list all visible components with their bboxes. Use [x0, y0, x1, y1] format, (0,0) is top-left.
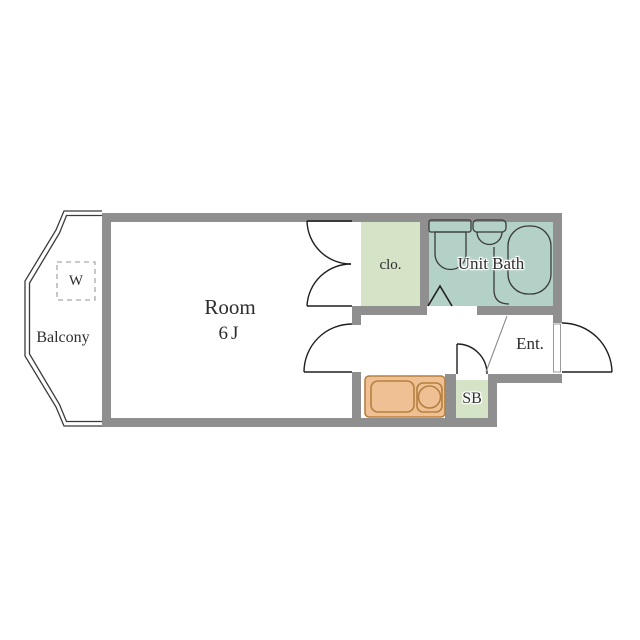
- balcony-outline: [25, 211, 102, 426]
- room-door-arc: [304, 324, 352, 372]
- wall-entrance-bottom: [488, 374, 562, 383]
- wall-kitchen-sb: [445, 374, 456, 427]
- wall-left: [102, 213, 111, 427]
- floorplan-canvas: Balcony W Room 6J clo. Unit Bath Ent. SB: [0, 0, 640, 640]
- wall-corridor-left-lower: [352, 372, 361, 418]
- wall-sb-right: [488, 374, 497, 427]
- kitchen-counter-icon: [365, 376, 445, 417]
- room-size-label: 6J: [150, 323, 310, 345]
- bath-door-opening: [427, 306, 477, 315]
- balcony-inner-line: [30, 216, 103, 422]
- wall-bottom: [102, 418, 497, 427]
- wall-closet-bath: [420, 213, 429, 315]
- entrance-door-icon: [562, 323, 612, 372]
- balcony-outer-line: [25, 211, 102, 426]
- closet-double-door-icon: [307, 221, 352, 306]
- unit-bath-label: Unit Bath: [429, 254, 553, 274]
- kitchen-counter: [365, 376, 445, 417]
- floorplan-drawing: [0, 0, 640, 640]
- room-label: Room: [150, 295, 310, 320]
- hall-door-arc: [457, 344, 487, 374]
- wall-corridor-left-upper: [352, 306, 361, 325]
- shoe-box-label: SB: [456, 390, 488, 408]
- closet-label: clo.: [361, 257, 420, 274]
- closet-door-arc-top: [307, 221, 351, 264]
- entrance-door-arc: [562, 323, 612, 372]
- entrance-label: Ent.: [502, 334, 558, 354]
- washer-label: W: [57, 262, 95, 300]
- balcony-label: Balcony: [25, 329, 101, 347]
- closet-door-arc-bottom: [307, 264, 351, 306]
- hall-door-icon: [457, 344, 487, 374]
- room-door-icon: [304, 324, 352, 372]
